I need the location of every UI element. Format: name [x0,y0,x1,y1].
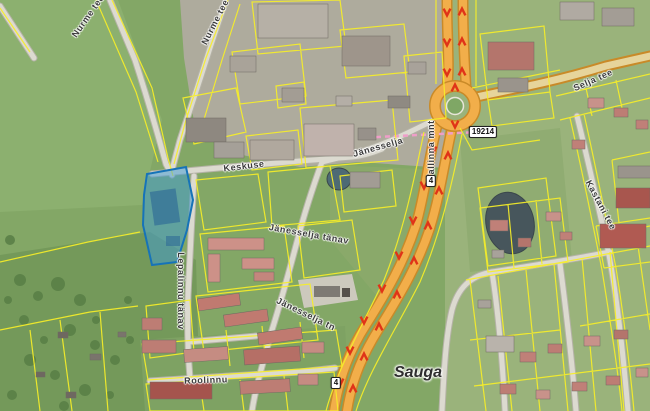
map-canvas [0,0,650,411]
map-viewport[interactable]: Nurme teeNurme teeKeskuseJänesseljaTalli… [0,0,650,411]
